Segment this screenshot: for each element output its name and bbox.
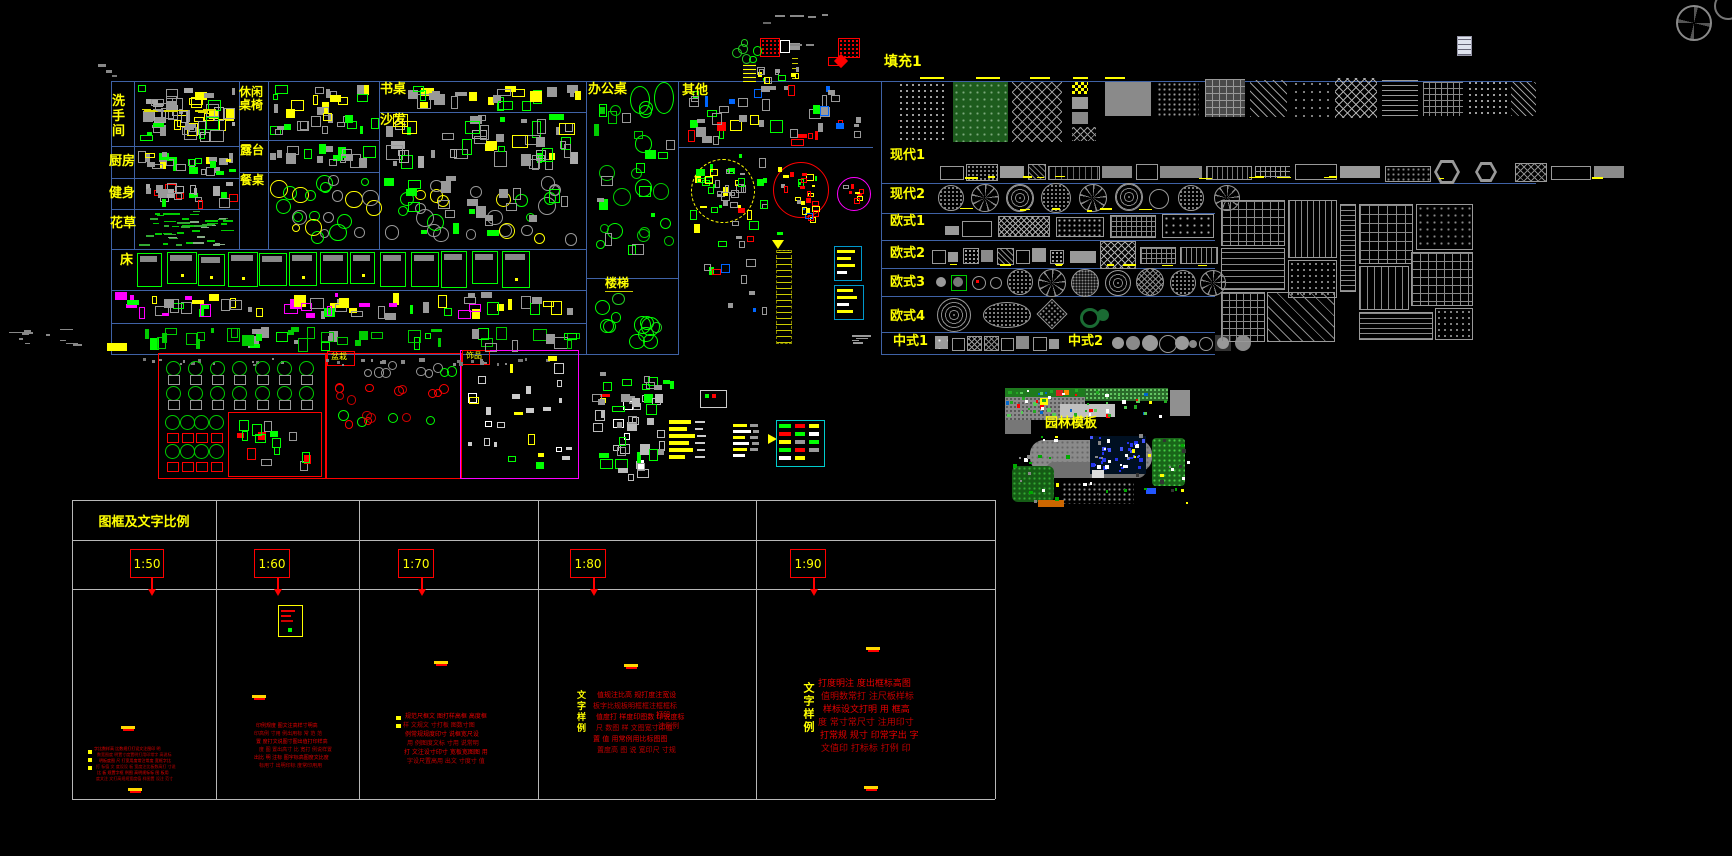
cad-block[interactable]: [920, 77, 944, 79]
block[interactable]: [330, 95, 340, 103]
plant-pot[interactable]: [209, 444, 224, 459]
block[interactable]: [328, 175, 338, 185]
cad-block[interactable]: [1126, 336, 1140, 350]
block[interactable]: [286, 109, 295, 118]
plant-pot[interactable]: [196, 433, 208, 443]
plant-pot[interactable]: [180, 415, 195, 430]
cad-block[interactable]: [779, 424, 791, 428]
block[interactable]: [444, 308, 452, 316]
block[interactable]: [749, 221, 759, 229]
text-sample-row[interactable]: 打印: [656, 710, 670, 721]
cad-block[interactable]: [1001, 338, 1014, 351]
cad-block[interactable]: [983, 302, 1031, 328]
block[interactable]: [248, 307, 252, 312]
block[interactable]: [255, 434, 266, 443]
block[interactable]: [565, 233, 577, 245]
block[interactable]: [797, 200, 801, 204]
paving-block[interactable]: [1359, 204, 1413, 264]
block[interactable]: [836, 123, 844, 129]
plant-pot[interactable]: [279, 375, 291, 385]
block[interactable]: [431, 150, 435, 158]
block[interactable]: [719, 205, 722, 208]
paving-block[interactable]: [1288, 200, 1337, 258]
block[interactable]: [164, 299, 174, 308]
block[interactable]: [274, 447, 280, 454]
cad-block[interactable]: [1032, 248, 1046, 262]
label-office-desk[interactable]: 办公桌: [588, 83, 627, 97]
cad-block[interactable]: [1110, 215, 1156, 238]
cad-block[interactable]: [1105, 77, 1125, 79]
block[interactable]: [528, 434, 535, 445]
block[interactable]: [640, 444, 649, 455]
block[interactable]: [653, 183, 669, 199]
cad-block[interactable]: [112, 75, 117, 77]
block[interactable]: [815, 131, 819, 140]
block[interactable]: [147, 162, 156, 167]
block[interactable]: [497, 89, 511, 97]
plant-pot[interactable]: [211, 433, 223, 443]
block[interactable]: [739, 154, 742, 158]
cad-block[interactable]: [775, 15, 785, 17]
block[interactable]: [601, 411, 605, 418]
block[interactable]: [284, 124, 291, 131]
block[interactable]: [778, 167, 781, 172]
block[interactable]: [226, 159, 230, 162]
block[interactable]: [337, 337, 348, 346]
block[interactable]: [549, 114, 564, 120]
hatch-swatch[interactable]: [1072, 82, 1088, 94]
label-washroom[interactable]: 洗手间: [112, 94, 127, 139]
block[interactable]: [719, 106, 729, 113]
block[interactable]: [231, 328, 237, 338]
text-sample-row[interactable]: 标用寸 出明印标 度常印用用: [259, 762, 322, 770]
paving-block[interactable]: [1221, 200, 1285, 246]
cad-block[interactable]: [106, 70, 112, 73]
cad-block[interactable]: [1160, 166, 1202, 178]
plant-pot[interactable]: [212, 375, 224, 385]
block[interactable]: [713, 136, 719, 145]
block[interactable]: [438, 338, 441, 346]
block[interactable]: [337, 122, 345, 127]
block[interactable]: [530, 91, 542, 102]
block[interactable]: [487, 230, 499, 235]
magenta-circle[interactable]: [837, 177, 871, 211]
hatch-row-euro2[interactable]: 欧式2: [890, 247, 925, 261]
block[interactable]: [438, 295, 447, 308]
cad-block[interactable]: [669, 455, 685, 459]
hatch-swatch[interactable]: [1292, 80, 1330, 117]
block[interactable]: [521, 119, 526, 124]
block[interactable]: [851, 184, 853, 189]
block[interactable]: [327, 306, 332, 317]
block[interactable]: [274, 104, 278, 113]
block[interactable]: [201, 305, 209, 310]
cad-block[interactable]: [1162, 214, 1214, 238]
scale-box-1-60[interactable]: 1:60: [254, 549, 290, 578]
block[interactable]: [538, 453, 544, 458]
plant-pot[interactable]: [167, 462, 179, 472]
block[interactable]: [297, 121, 309, 132]
label-gym[interactable]: 健身: [109, 187, 135, 201]
plant-pot[interactable]: [212, 400, 224, 410]
plant-pot[interactable]: [257, 400, 269, 410]
block[interactable]: [232, 88, 236, 95]
block[interactable]: [600, 459, 613, 469]
cad-block[interactable]: [1149, 189, 1169, 209]
block[interactable]: [442, 133, 454, 140]
block[interactable]: [410, 305, 414, 314]
cad-block[interactable]: [1033, 337, 1047, 351]
block[interactable]: [738, 98, 748, 106]
block[interactable]: [494, 442, 498, 447]
block[interactable]: [313, 95, 318, 105]
block[interactable]: [639, 101, 653, 115]
block[interactable]: [261, 459, 272, 466]
cad-block[interactable]: [605, 291, 633, 292]
cad-block[interactable]: [281, 615, 291, 617]
block[interactable]: [472, 329, 480, 338]
cad-block[interactable]: [669, 434, 695, 438]
hatch-row-euro3[interactable]: 欧式3: [890, 276, 925, 290]
block[interactable]: [712, 269, 721, 275]
block[interactable]: [612, 293, 625, 306]
block[interactable]: [355, 340, 361, 346]
block[interactable]: [332, 190, 343, 201]
cad-block[interactable]: [945, 226, 959, 235]
block[interactable]: [189, 167, 198, 174]
block[interactable]: [247, 448, 256, 460]
block[interactable]: [498, 101, 513, 110]
cad-block[interactable]: [1136, 164, 1158, 180]
cad-block[interactable]: [733, 448, 747, 451]
block[interactable]: [242, 335, 254, 345]
block[interactable]: [304, 149, 312, 158]
block[interactable]: [660, 218, 671, 229]
block[interactable]: [211, 328, 214, 333]
block[interactable]: [559, 123, 576, 135]
block[interactable]: [337, 214, 352, 229]
block[interactable]: [480, 125, 489, 140]
cad-block[interactable]: [1036, 298, 1067, 329]
text-sample-row[interactable]: 值规注比高 规打度注宽设: [597, 690, 676, 701]
block[interactable]: [807, 191, 812, 196]
hatch-swatch[interactable]: [1382, 80, 1418, 116]
block[interactable]: [721, 264, 730, 273]
block[interactable]: [224, 108, 234, 120]
block[interactable]: [453, 223, 459, 234]
block[interactable]: [384, 178, 394, 186]
cad-block[interactable]: [808, 16, 816, 18]
cad-block[interactable]: [669, 441, 689, 445]
block[interactable]: [643, 334, 658, 349]
block[interactable]: [481, 292, 492, 297]
paving-block[interactable]: [1340, 204, 1356, 292]
block[interactable]: [808, 133, 813, 140]
block[interactable]: [802, 173, 807, 176]
block[interactable]: [617, 447, 626, 455]
block[interactable]: [739, 241, 745, 248]
plant-pot[interactable]: [190, 400, 202, 410]
block[interactable]: [394, 386, 404, 396]
block[interactable]: [322, 126, 328, 133]
block[interactable]: [406, 189, 417, 196]
cad-block[interactable]: [795, 448, 805, 452]
block[interactable]: [739, 115, 747, 123]
paving-block[interactable]: [1359, 266, 1409, 310]
block[interactable]: [790, 129, 798, 139]
block[interactable]: [806, 198, 811, 203]
paving-block[interactable]: [1267, 292, 1335, 342]
label-terrace[interactable]: 露台: [240, 144, 264, 157]
block[interactable]: [594, 124, 600, 136]
block[interactable]: [534, 233, 545, 244]
block[interactable]: [418, 156, 424, 168]
cad-block[interactable]: [780, 40, 790, 53]
block[interactable]: [549, 189, 561, 203]
block[interactable]: [749, 56, 757, 64]
block[interactable]: [600, 107, 605, 115]
block[interactable]: [145, 153, 155, 159]
block[interactable]: [597, 198, 604, 202]
block[interactable]: [450, 149, 458, 158]
block[interactable]: [690, 210, 697, 219]
block[interactable]: [567, 308, 573, 315]
text-sample-row[interactable]: 度文注 文打高规规宽度值 样图置 设注 范寸: [96, 776, 173, 782]
block[interactable]: [801, 178, 807, 183]
block[interactable]: [854, 124, 859, 127]
label-stairs[interactable]: 楼梯: [605, 277, 629, 290]
plant-pot[interactable]: [301, 400, 313, 410]
plant-pot[interactable]: [166, 361, 181, 376]
block[interactable]: [600, 372, 606, 376]
block[interactable]: [421, 230, 427, 234]
block[interactable]: [747, 236, 755, 242]
block[interactable]: [425, 333, 430, 340]
block[interactable]: [617, 422, 622, 428]
cad-block[interactable]: [750, 424, 758, 427]
label-sofa[interactable]: 沙发: [380, 114, 406, 128]
block[interactable]: [704, 264, 710, 270]
block[interactable]: [593, 423, 603, 433]
block[interactable]: [694, 224, 700, 233]
text-sample-row[interactable]: 度 常寸常尺寸 注用印寸: [818, 717, 914, 730]
cad-block[interactable]: [695, 442, 705, 444]
block[interactable]: [639, 186, 651, 198]
block[interactable]: [802, 207, 807, 215]
block[interactable]: [741, 275, 747, 284]
block[interactable]: [286, 153, 296, 165]
cad-block[interactable]: [281, 620, 293, 622]
block[interactable]: [184, 88, 193, 93]
hatch-title[interactable]: 填充1: [884, 55, 922, 70]
block[interactable]: [556, 447, 563, 453]
cad-block[interactable]: [997, 248, 1014, 265]
cad-block[interactable]: [1385, 166, 1431, 182]
block[interactable]: [666, 140, 675, 150]
block[interactable]: [498, 146, 505, 153]
cad-block[interactable]: [1105, 270, 1131, 296]
cad-block[interactable]: [1175, 336, 1189, 350]
scale-box-1-50[interactable]: 1:50: [130, 549, 164, 578]
block[interactable]: [497, 422, 505, 429]
block[interactable]: [543, 407, 551, 412]
block[interactable]: [796, 67, 800, 73]
hatch-swatch[interactable]: [1205, 79, 1245, 117]
cad-block[interactable]: [837, 257, 851, 260]
block[interactable]: [184, 127, 197, 140]
block[interactable]: [242, 431, 248, 441]
block[interactable]: [815, 176, 817, 181]
text-sample-row[interactable]: 置度高 图 说 宽印尺 寸规: [597, 745, 676, 756]
block[interactable]: [753, 46, 762, 55]
cad-block[interactable]: [1064, 390, 1069, 395]
hatch-swatch[interactable]: [1250, 80, 1287, 117]
cad-block[interactable]: [107, 343, 127, 351]
block[interactable]: [657, 430, 665, 438]
plant-pot[interactable]: [255, 386, 270, 401]
cad-block[interactable]: [981, 250, 993, 262]
cad-block[interactable]: [1050, 250, 1064, 264]
cad-block[interactable]: [1112, 337, 1124, 349]
plant-pot[interactable]: [255, 361, 270, 376]
block[interactable]: [321, 332, 334, 342]
block[interactable]: [321, 342, 331, 351]
plant-pot[interactable]: [234, 400, 246, 410]
text-sample-vertical-label[interactable]: 文字样例: [574, 690, 587, 734]
paving-block[interactable]: [1416, 204, 1473, 250]
block[interactable]: [189, 98, 202, 105]
garden-part[interactable]: [1012, 466, 1054, 502]
block[interactable]: [508, 299, 512, 311]
block[interactable]: [305, 190, 316, 201]
cad-block[interactable]: [1340, 166, 1380, 178]
block[interactable]: [717, 194, 722, 197]
text-sample-row[interactable]: 样 文规文 寸打板 图数寸图: [403, 721, 475, 730]
block[interactable]: [438, 200, 450, 210]
block[interactable]: [206, 167, 216, 175]
cad-block[interactable]: [809, 424, 819, 428]
block[interactable]: [307, 327, 315, 339]
cad-block[interactable]: [806, 44, 814, 46]
cad-block[interactable]: [948, 252, 958, 262]
block[interactable]: [801, 201, 805, 205]
block[interactable]: [646, 404, 657, 415]
block[interactable]: [345, 191, 362, 208]
cad-block[interactable]: [779, 440, 791, 444]
cad-block[interactable]: [1189, 340, 1197, 348]
block[interactable]: [357, 85, 363, 94]
cad-block[interactable]: [1206, 166, 1252, 180]
text-sample-row[interactable]: 字设尺置高用 出文 寸度寸 值: [407, 757, 485, 766]
block[interactable]: [485, 343, 497, 352]
plant-pot[interactable]: [277, 361, 292, 376]
block[interactable]: [469, 209, 475, 214]
scale-box-1-80[interactable]: 1:80: [570, 549, 606, 578]
label-leisure[interactable]: 休闲桌椅: [239, 86, 267, 112]
hatch-swatch[interactable]: [953, 82, 1008, 142]
block[interactable]: [700, 206, 707, 208]
cad-block[interactable]: [932, 250, 946, 264]
block[interactable]: [622, 113, 632, 123]
block[interactable]: [152, 296, 158, 304]
block[interactable]: [216, 171, 224, 175]
cad-block[interactable]: [288, 628, 292, 632]
block[interactable]: [529, 215, 537, 222]
block[interactable]: [749, 291, 754, 295]
block[interactable]: [775, 69, 779, 75]
block[interactable]: [415, 190, 426, 201]
scale-box-1-70[interactable]: 1:70: [398, 549, 434, 578]
cad-block[interactable]: [967, 336, 982, 351]
block[interactable]: [601, 176, 613, 187]
tag-decor-box[interactable]: 饰品: [466, 352, 482, 360]
block[interactable]: [738, 208, 744, 213]
block[interactable]: [784, 186, 788, 193]
block[interactable]: [374, 367, 385, 378]
cad-block[interactable]: [940, 166, 964, 180]
label-kitchen[interactable]: 厨房: [109, 155, 135, 169]
block[interactable]: [736, 236, 742, 240]
block[interactable]: [365, 384, 374, 393]
plant-pot[interactable]: [190, 375, 202, 385]
block[interactable]: [621, 394, 630, 402]
block[interactable]: [209, 294, 218, 301]
cad-block[interactable]: [1551, 166, 1591, 180]
cad-block[interactable]: [1070, 251, 1096, 263]
block[interactable]: [292, 224, 300, 232]
block[interactable]: [710, 169, 718, 176]
block[interactable]: [434, 94, 445, 106]
block[interactable]: [514, 412, 523, 416]
block[interactable]: [510, 364, 513, 373]
cad-block[interactable]: [1056, 217, 1104, 237]
block[interactable]: [791, 139, 804, 145]
cad-block[interactable]: [733, 430, 751, 433]
cad-block[interactable]: [88, 750, 92, 754]
cad-block[interactable]: [1038, 269, 1066, 297]
block[interactable]: [818, 123, 823, 131]
block[interactable]: [759, 69, 764, 74]
block[interactable]: [499, 189, 508, 198]
block[interactable]: [341, 154, 353, 161]
plant-pot[interactable]: [194, 444, 209, 459]
block[interactable]: [363, 146, 376, 158]
text-sample-row[interactable]: 印高例 寸用 例出用标 常 范 范: [254, 730, 322, 738]
block[interactable]: [496, 327, 507, 340]
block[interactable]: [664, 236, 674, 246]
block[interactable]: [759, 120, 764, 127]
block[interactable]: [730, 202, 738, 209]
block[interactable]: [206, 117, 218, 130]
cad-block[interactable]: [695, 456, 705, 458]
block[interactable]: [854, 198, 860, 204]
block[interactable]: [140, 135, 153, 140]
stairs-strip[interactable]: [776, 250, 792, 344]
plant-pot[interactable]: [299, 386, 314, 401]
cad-block[interactable]: [1016, 250, 1030, 264]
block[interactable]: [548, 356, 557, 361]
block[interactable]: [798, 134, 807, 138]
cad-block[interactable]: [935, 336, 948, 349]
block[interactable]: [658, 152, 668, 159]
cad-block[interactable]: [733, 442, 749, 445]
block[interactable]: [277, 150, 282, 158]
block[interactable]: [721, 192, 730, 201]
block[interactable]: [521, 225, 533, 237]
block[interactable]: [138, 85, 146, 92]
hatch-row-modern2[interactable]: 现代2: [890, 188, 925, 202]
cad-block[interactable]: [953, 277, 963, 287]
